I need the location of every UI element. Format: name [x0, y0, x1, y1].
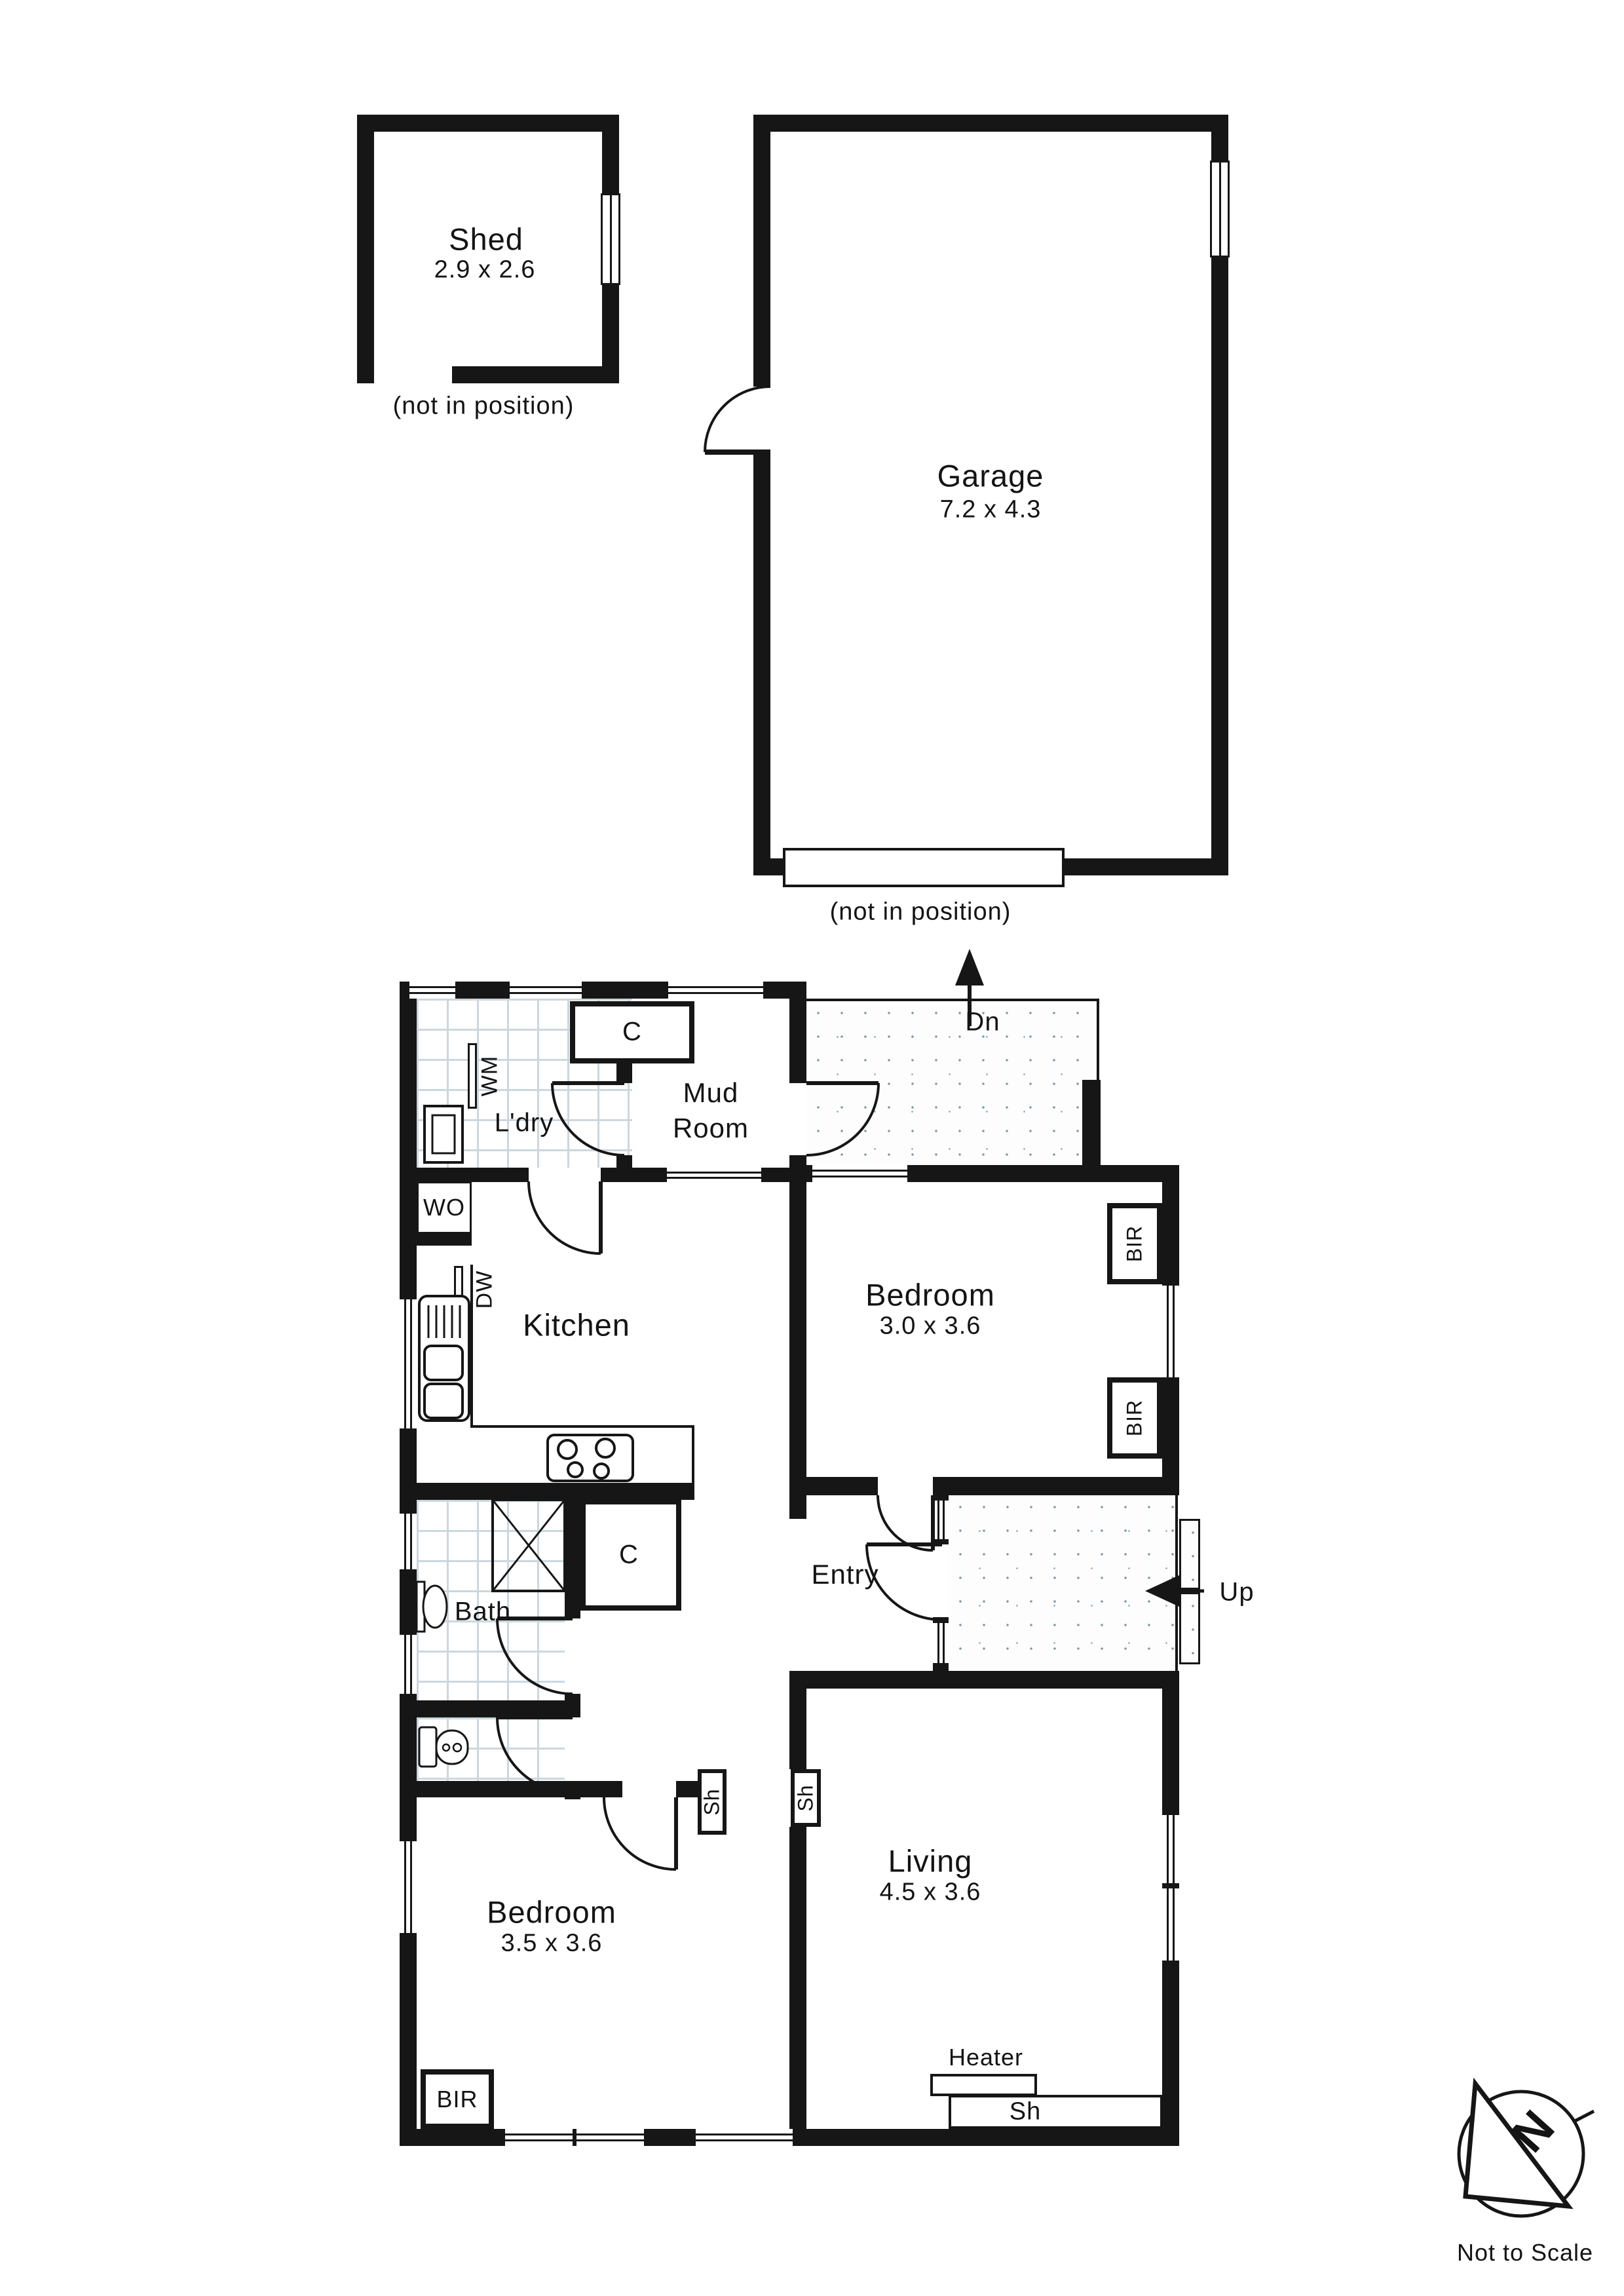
bath-name: Bath [455, 1598, 511, 1627]
bed1-name: Bedroom [865, 1277, 995, 1313]
mudroom-name-line2: Room [673, 1113, 749, 1144]
stairs-up-label: Up [1219, 1578, 1254, 1607]
kitchen-name: Kitchen [523, 1307, 630, 1343]
shelf-living-corner-label: Sh [794, 1784, 818, 1811]
laundry-closet-label: C [622, 1018, 642, 1047]
basin-icon [417, 1582, 447, 1632]
shelf-band-label: Sh [1010, 2098, 1041, 2126]
floor-plan: Shed 2.9 x 2.6 (not in position) Garage … [0, 0, 1624, 2296]
dishwasher-label: DW [472, 1271, 498, 1309]
stairs-up-arrow [1145, 1575, 1204, 1607]
laundry-name: L'dry [495, 1109, 554, 1138]
plan-symbols [0, 0, 1624, 2296]
bed2-door-arc [604, 1797, 676, 1869]
garage-side-door-arc [705, 387, 770, 452]
shelf-hall-label: Sh [700, 1788, 725, 1815]
sink-icon [419, 1296, 469, 1421]
bir-bed2-label: BIR [436, 2086, 478, 2113]
bir-bed1-lower-label: BIR [1123, 1400, 1147, 1436]
toilet-icon [419, 1727, 468, 1767]
cooktop-icon [548, 1435, 633, 1481]
laundry-trough-icon [425, 1106, 463, 1162]
bed2-dims: 3.5 x 3.6 [501, 1930, 603, 1958]
living-name: Living [888, 1843, 973, 1879]
mudroom-porch-door-arc [806, 1083, 878, 1155]
laundry-door-arc [552, 1083, 624, 1155]
kitchen-door-arc [529, 1181, 601, 1253]
bed2-name: Bedroom [487, 1894, 616, 1930]
wall-oven-label: WO [423, 1194, 465, 1221]
bir-bed1-upper-label: BIR [1123, 1225, 1147, 1262]
hall-closet-label: C [619, 1540, 639, 1570]
washing-machine-label: WM [478, 1056, 503, 1096]
not-to-scale-label: Not to Scale [1457, 2239, 1593, 2267]
living-dims: 4.5 x 3.6 [880, 1879, 981, 1907]
heater-label: Heater [949, 2044, 1023, 2071]
mudroom-name-line1: Mud [683, 1077, 739, 1109]
stairs-down-label: Dn [965, 1008, 1000, 1037]
wc-door-arc [497, 1717, 573, 1793]
bath-door-arc [497, 1618, 573, 1694]
entry-name: Entry [811, 1559, 878, 1590]
bed1-dims: 3.0 x 3.6 [880, 1312, 981, 1341]
bed1-door-arc [878, 1495, 933, 1550]
